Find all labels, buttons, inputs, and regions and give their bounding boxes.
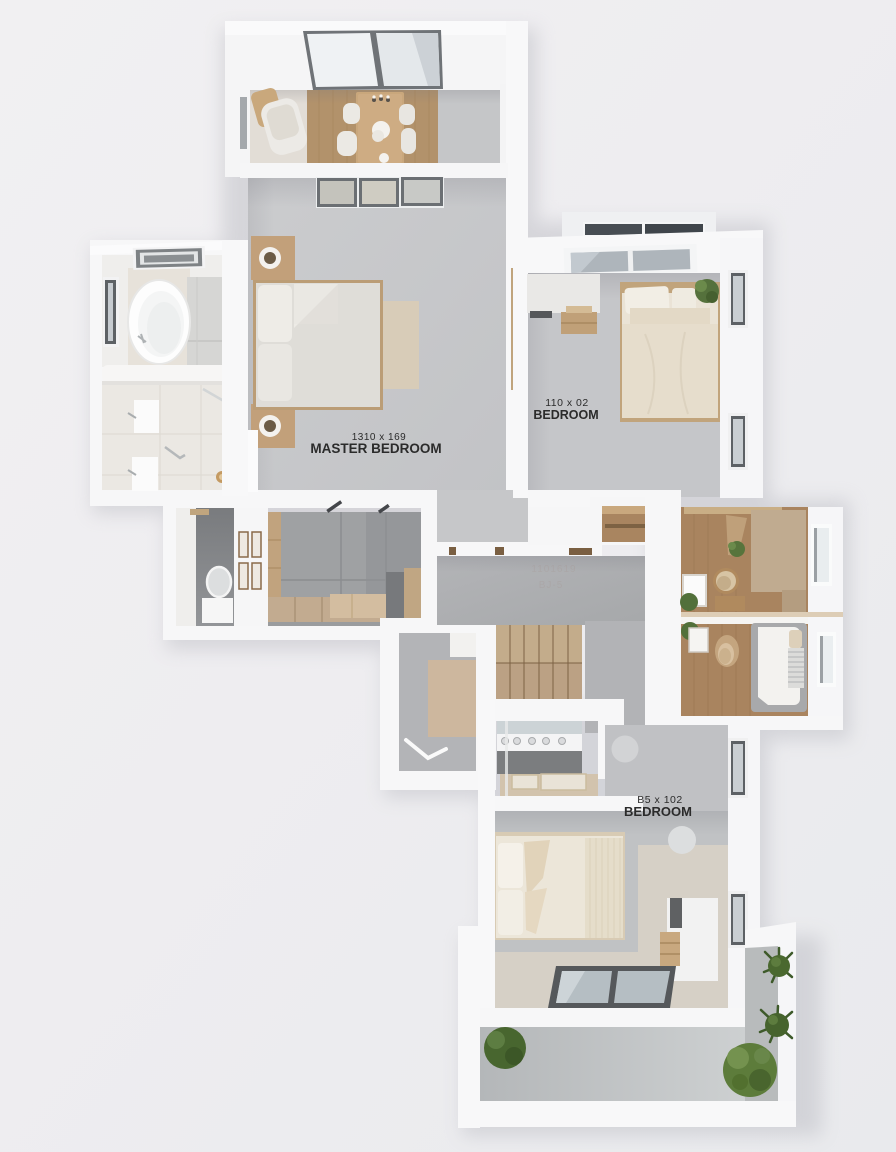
svg-text:BEDROOM: BEDROOM <box>624 804 692 819</box>
svg-text:BEDROOM: BEDROOM <box>533 408 598 422</box>
svg-text:1101619: 1101619 <box>531 564 576 575</box>
svg-text:MASTER BEDROOM: MASTER BEDROOM <box>310 441 441 456</box>
svg-text:BJ-5: BJ-5 <box>539 580 564 591</box>
